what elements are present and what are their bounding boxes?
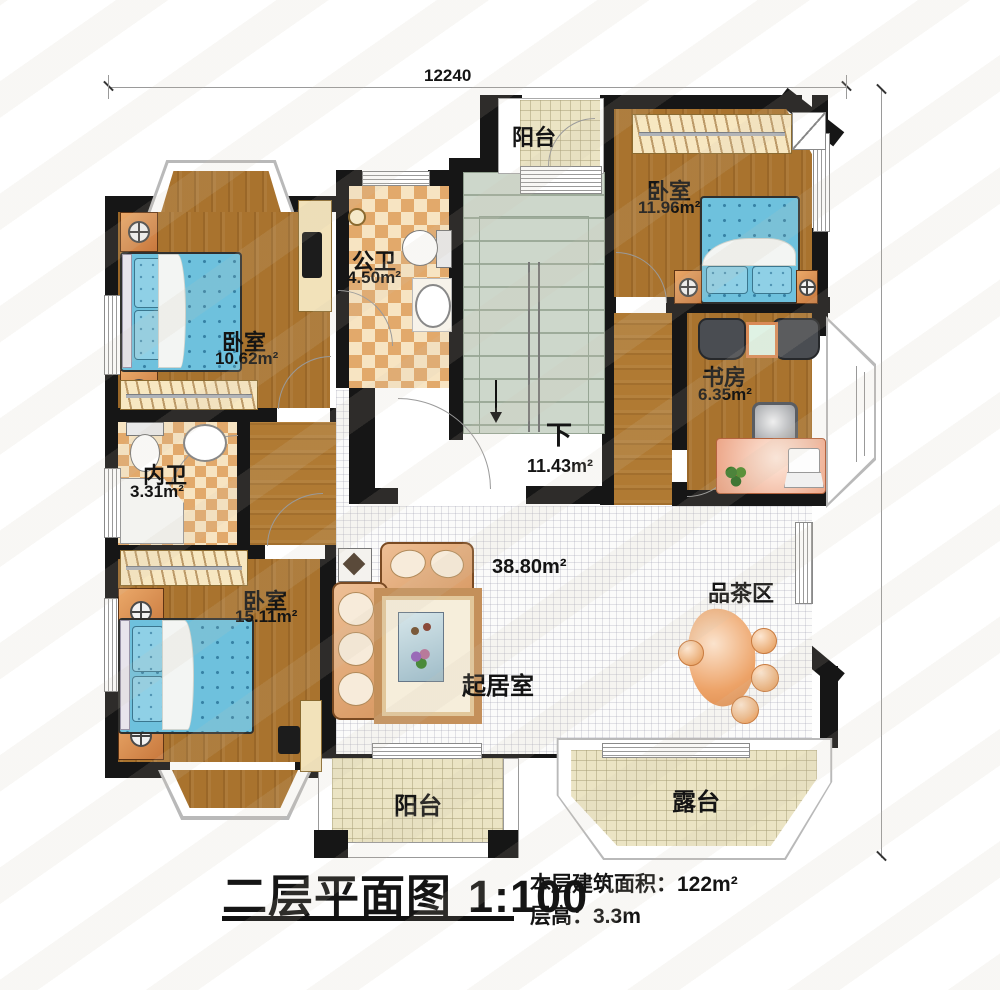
side-table bbox=[746, 322, 778, 358]
sink-icon bbox=[415, 284, 451, 328]
floor-height-note: 层高：3.3m bbox=[530, 900, 641, 930]
towel-ring-icon bbox=[348, 208, 366, 226]
wardrobe-rail bbox=[126, 394, 251, 398]
dimension-line-top bbox=[108, 87, 847, 88]
room-label-terrace: 露台 bbox=[672, 782, 720, 817]
bay-floor bbox=[172, 770, 298, 808]
toilet-icon bbox=[402, 230, 438, 266]
dimension-extension bbox=[108, 75, 109, 99]
pillow bbox=[132, 626, 164, 672]
sofa-cushion bbox=[338, 672, 374, 706]
room-label-living-room: 起居室 bbox=[462, 666, 534, 701]
bed-sheet bbox=[158, 254, 186, 368]
pillow bbox=[706, 266, 748, 294]
flower-decor bbox=[407, 647, 433, 671]
tv bbox=[278, 726, 300, 754]
chair bbox=[698, 318, 746, 360]
wardrobe bbox=[632, 114, 792, 154]
stool bbox=[731, 696, 759, 724]
floor-area-note: 本层建筑面积：122m² bbox=[530, 868, 738, 898]
wall bbox=[336, 170, 362, 186]
bed-headboard bbox=[122, 254, 132, 368]
corner-cabinet bbox=[792, 112, 826, 150]
study-bay-pane-line bbox=[864, 372, 865, 456]
window bbox=[104, 468, 121, 538]
window bbox=[362, 171, 430, 186]
sink-icon bbox=[183, 424, 227, 462]
room-area-public-bathroom: 4.50m² bbox=[347, 268, 401, 288]
tv-cabinet bbox=[300, 700, 322, 772]
nightstand bbox=[120, 212, 158, 252]
dimension-extension bbox=[846, 75, 847, 99]
nightstand-knob bbox=[679, 278, 698, 297]
toilet-tank bbox=[436, 230, 452, 268]
stair-hall-area: 11.43m² bbox=[527, 456, 593, 477]
stair-down-label: 下 bbox=[546, 415, 572, 452]
coffee-table bbox=[398, 612, 444, 682]
room-area-bedroom-bottom-left: 15.11m² bbox=[235, 607, 297, 627]
room-label-balcony-bottom: 阳台 bbox=[394, 786, 442, 821]
nightstand-knob bbox=[128, 221, 150, 243]
sofa-cushion bbox=[338, 592, 374, 626]
lamp-icon bbox=[343, 553, 366, 576]
corridor-floor bbox=[614, 313, 672, 505]
sofa-cushion bbox=[338, 632, 374, 666]
stool bbox=[751, 628, 777, 654]
table-decor bbox=[423, 623, 431, 631]
tv bbox=[302, 232, 322, 278]
room-area-bedroom-top-right: 11.96m² bbox=[638, 198, 700, 218]
stair-arrow-head bbox=[490, 412, 502, 423]
stool bbox=[751, 664, 779, 692]
bay-floor bbox=[160, 171, 282, 216]
room-label-balcony-top: 阳台 bbox=[512, 120, 556, 152]
pillow bbox=[752, 266, 792, 294]
living-floor-strip bbox=[336, 390, 349, 506]
room-area-bedroom-top-left: 10.62m² bbox=[215, 349, 278, 369]
wall bbox=[314, 830, 348, 858]
wardrobe-rail bbox=[639, 132, 784, 136]
nightstand bbox=[674, 270, 702, 304]
wall bbox=[820, 666, 838, 748]
wardrobe bbox=[120, 550, 248, 586]
wall bbox=[237, 420, 250, 545]
study-bay-pane-line bbox=[856, 366, 857, 462]
living-room-area: 38.80m² bbox=[492, 556, 567, 579]
dimension-top-label: 12240 bbox=[424, 66, 471, 86]
wall bbox=[672, 313, 687, 450]
stair-handrail bbox=[528, 262, 540, 432]
end-table bbox=[338, 548, 372, 582]
wardrobe bbox=[120, 380, 258, 410]
study-bay-window bbox=[828, 321, 874, 503]
nightstand bbox=[796, 270, 818, 304]
wall bbox=[105, 408, 277, 422]
window-sliding-door bbox=[372, 743, 482, 759]
nightstand-knob bbox=[799, 279, 816, 296]
dimension-line-right bbox=[881, 90, 882, 858]
room-label-tea-area: 品茶区 bbox=[708, 576, 774, 608]
window bbox=[104, 295, 121, 375]
table-decor bbox=[411, 627, 419, 635]
wall bbox=[349, 486, 398, 504]
wall bbox=[605, 297, 616, 313]
room-area-inner-bathroom: 3.31m² bbox=[130, 482, 184, 502]
plan-title: 二层平面图 bbox=[222, 871, 452, 922]
bed-headboard bbox=[120, 620, 130, 730]
plant-icon bbox=[724, 464, 748, 488]
title-underline bbox=[222, 916, 514, 921]
window-sliding-door bbox=[520, 166, 602, 194]
window bbox=[602, 743, 750, 758]
wall bbox=[480, 127, 500, 172]
wardrobe-rail bbox=[126, 566, 242, 570]
wall bbox=[600, 95, 802, 109]
computer-icon bbox=[788, 448, 820, 474]
room-area-study: 6.35m² bbox=[698, 385, 752, 405]
bed-sheet bbox=[162, 620, 194, 730]
keyboard-icon bbox=[784, 472, 824, 488]
stool bbox=[678, 640, 704, 666]
stair-arrow-line bbox=[495, 380, 497, 414]
window bbox=[795, 522, 813, 604]
wall bbox=[449, 158, 482, 172]
chair bbox=[772, 318, 820, 360]
wall bbox=[488, 830, 518, 858]
wall bbox=[349, 388, 375, 488]
floor-plan-canvas: 12240 12940 bbox=[0, 0, 1000, 990]
pillow bbox=[132, 676, 164, 722]
